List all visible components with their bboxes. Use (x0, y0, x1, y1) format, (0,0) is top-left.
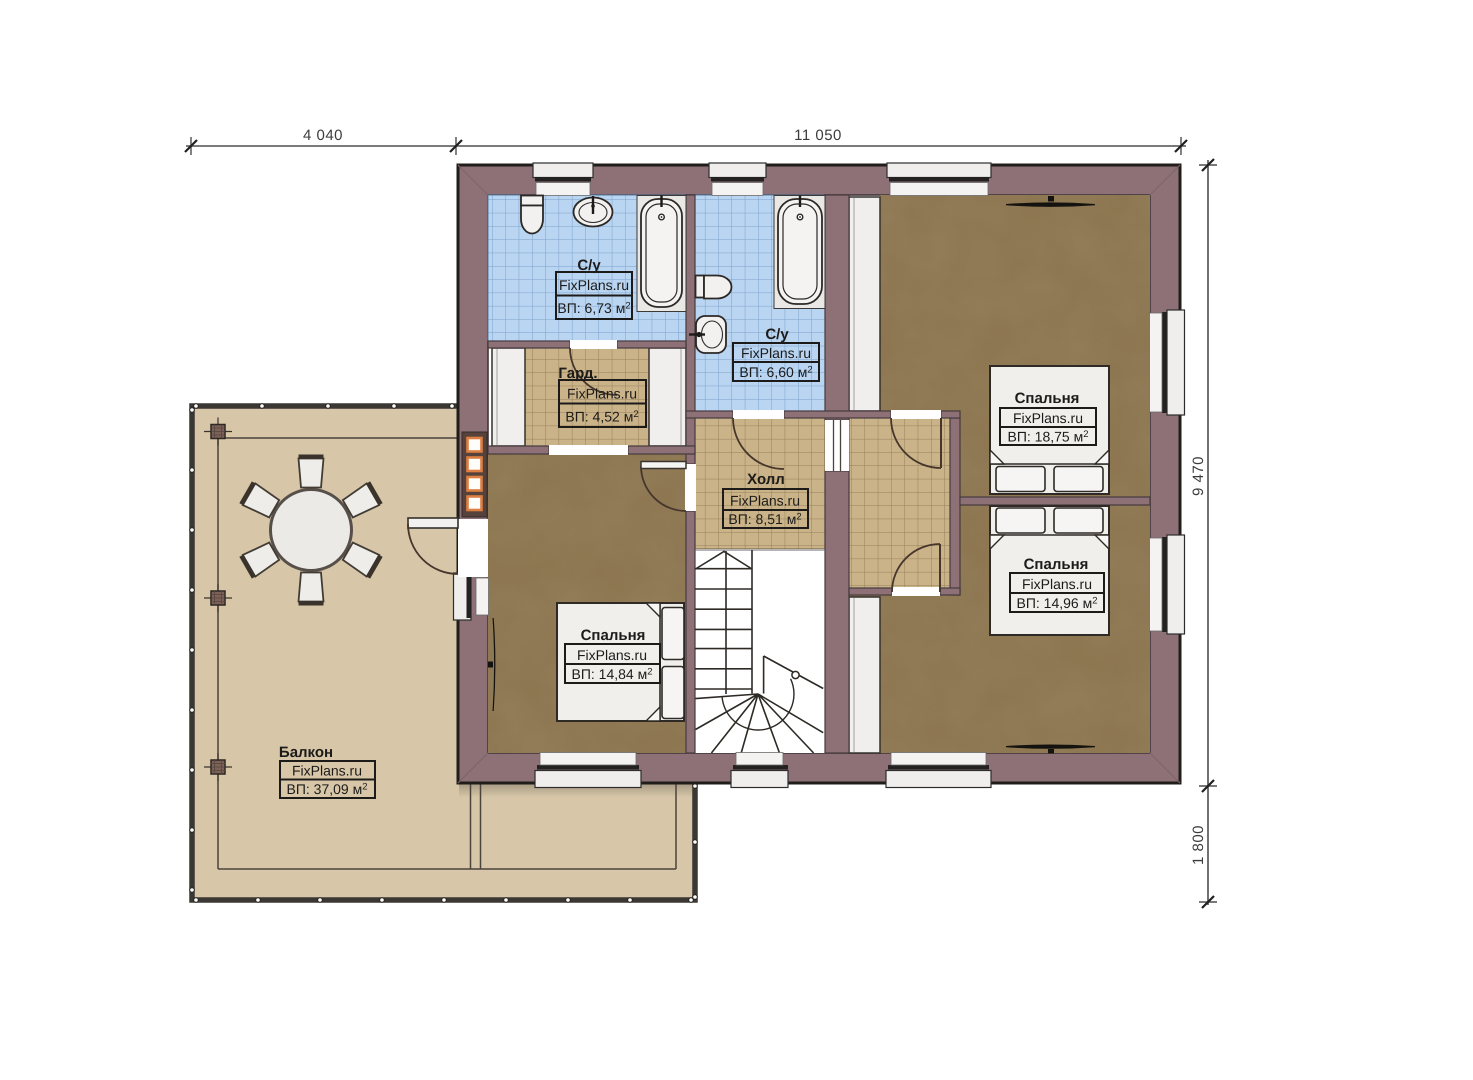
svg-text:Спальня: Спальня (1024, 556, 1089, 573)
svg-text:FixPlans.ru: FixPlans.ru (567, 386, 637, 402)
svg-text:1 800: 1 800 (1190, 825, 1207, 865)
svg-text:ВП: 14,84 м2: ВП: 14,84 м2 (571, 666, 652, 682)
svg-text:FixPlans.ru: FixPlans.ru (559, 277, 629, 293)
svg-text:ВП: 18,75 м2: ВП: 18,75 м2 (1007, 429, 1088, 445)
svg-text:FixPlans.ru: FixPlans.ru (577, 647, 647, 663)
svg-text:FixPlans.ru: FixPlans.ru (1022, 576, 1092, 592)
svg-text:11 050: 11 050 (794, 127, 842, 144)
svg-text:Балкон: Балкон (279, 744, 333, 761)
svg-text:9 470: 9 470 (1190, 456, 1207, 496)
svg-text:Холл: Холл (747, 471, 785, 488)
svg-text:FixPlans.ru: FixPlans.ru (741, 345, 811, 361)
svg-text:Спальня: Спальня (1015, 390, 1080, 407)
svg-text:ВП: 4,52 м2: ВП: 4,52 м2 (565, 409, 638, 425)
svg-text:4 040: 4 040 (303, 127, 343, 144)
svg-text:ВП: 6,60 м2: ВП: 6,60 м2 (739, 364, 812, 380)
svg-text:FixPlans.ru: FixPlans.ru (1013, 410, 1083, 426)
svg-text:FixPlans.ru: FixPlans.ru (730, 493, 800, 509)
svg-text:С/у: С/у (765, 326, 789, 343)
svg-text:ВП: 8,51 м2: ВП: 8,51 м2 (728, 511, 801, 527)
svg-text:ВП: 37,09 м2: ВП: 37,09 м2 (286, 781, 367, 797)
svg-text:Спальня: Спальня (581, 627, 646, 644)
svg-text:ВП: 6,73 м2: ВП: 6,73 м2 (557, 300, 630, 316)
svg-text:FixPlans.ru: FixPlans.ru (292, 763, 362, 779)
svg-text:ВП: 14,96 м2: ВП: 14,96 м2 (1016, 595, 1097, 611)
